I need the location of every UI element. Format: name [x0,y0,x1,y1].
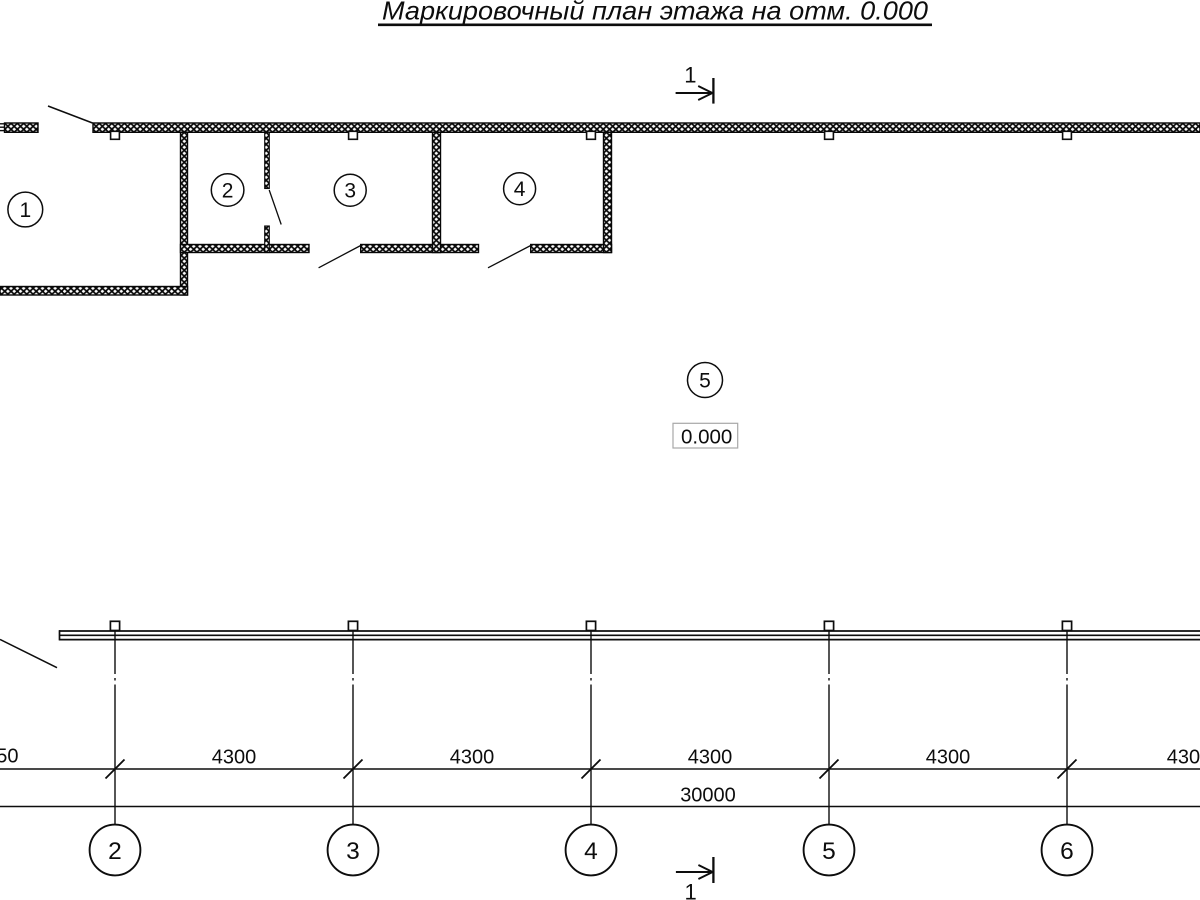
svg-text:Маркировочный план этажа на от: Маркировочный план этажа на отм. 0.000 [382,0,929,26]
svg-text:0.000: 0.000 [681,426,732,449]
svg-text:4300: 4300 [926,747,971,769]
svg-text:30000: 30000 [680,785,736,807]
svg-text:4: 4 [584,838,598,865]
svg-text:2: 2 [222,180,234,203]
svg-text:3: 3 [346,838,360,865]
svg-text:1: 1 [684,880,696,900]
svg-text:3: 3 [344,180,356,203]
svg-text:4300: 4300 [450,747,495,769]
svg-text:1: 1 [684,63,696,88]
svg-text:4: 4 [514,178,526,201]
svg-text:4300: 4300 [688,747,733,769]
svg-text:5: 5 [822,838,836,865]
svg-text:6: 6 [1060,838,1074,865]
svg-text:4300: 4300 [212,747,257,769]
svg-text:5: 5 [699,370,711,393]
svg-text:2: 2 [108,838,122,865]
svg-text:4300: 4300 [1167,747,1200,769]
svg-text:1: 1 [19,199,31,222]
svg-text:50: 50 [0,746,19,768]
